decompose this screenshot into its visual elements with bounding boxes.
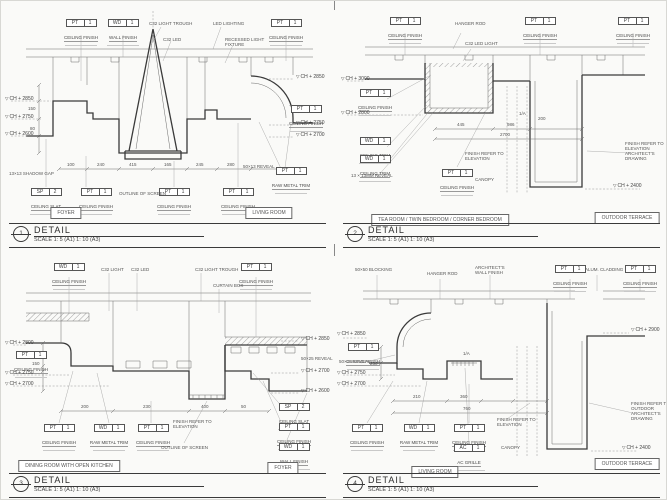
tag-code: PT bbox=[348, 343, 367, 351]
tag-number: 1 bbox=[379, 137, 391, 145]
level-symbol-icon: ▽ bbox=[341, 76, 344, 81]
tag-number: 1 bbox=[423, 424, 435, 432]
tag-spec-line bbox=[524, 42, 555, 44]
tag-number: 1 bbox=[85, 19, 97, 27]
tag-number: 1 bbox=[371, 424, 383, 432]
tag-number: 1 bbox=[461, 169, 473, 177]
title-block: 3 DETAIL SCALE 1: 5 (A1) 1: 10 (A3) bbox=[9, 473, 326, 498]
tag-label: CEILING FINISH bbox=[79, 204, 113, 211]
detail-number-bubble: 4 bbox=[347, 476, 363, 492]
tag-spec-line bbox=[93, 449, 124, 451]
callout-note: FINISH REFER TO ELEVATION bbox=[173, 419, 215, 429]
level-symbol-icon: ▽ bbox=[5, 340, 8, 345]
dim-label: 150 bbox=[32, 361, 40, 366]
tag-code: PT bbox=[618, 17, 637, 25]
room-label: DINING ROOM WITH OPEN KITCHEN bbox=[18, 460, 120, 472]
detail-title: DETAIL bbox=[34, 226, 204, 235]
tag-number: 1 bbox=[295, 167, 307, 175]
tag-number: 1 bbox=[63, 424, 75, 432]
level-marker: ▽CH + 2750 bbox=[5, 114, 34, 120]
tag-code: PT bbox=[223, 188, 242, 196]
dim-label: 760 bbox=[463, 406, 471, 411]
tag-number: 1 bbox=[242, 188, 254, 196]
dim-label: 100 bbox=[67, 162, 75, 167]
finish-tag: PT1 CEILING FINISH bbox=[341, 424, 393, 451]
callout-note: C32 LIGHT TROUGH bbox=[195, 267, 238, 272]
detail-title: DETAIL bbox=[368, 226, 538, 235]
tag-spec-line bbox=[43, 449, 74, 451]
dim-label: 80 bbox=[30, 126, 35, 131]
dim-label: 240 bbox=[97, 162, 105, 167]
level-marker: ▽CH + 2850 bbox=[337, 331, 366, 337]
finish-tag: WD1 WALL FINISH bbox=[97, 19, 149, 46]
level-marker: ▽CH + 2750 bbox=[337, 370, 366, 376]
tag-number: 1 bbox=[178, 188, 190, 196]
tag-label: RAW METAL TRIM bbox=[272, 183, 310, 190]
callout-note: OUTLINE OF SCREEN bbox=[119, 191, 166, 196]
dim-label: 200 bbox=[538, 116, 546, 121]
tag-code: PT bbox=[271, 19, 290, 27]
finish-tag: WD1 RAW METAL TRIM bbox=[393, 424, 445, 451]
detail-title: DETAIL bbox=[34, 476, 204, 485]
tag-code: PT bbox=[279, 423, 298, 431]
tag-code: PT bbox=[454, 424, 473, 432]
tag-number: 1 bbox=[260, 263, 272, 271]
dim-label: 360 bbox=[460, 394, 468, 399]
dim-label: 150 bbox=[28, 106, 36, 111]
tag-label: CEILING FINISH bbox=[269, 35, 303, 42]
level-marker: ▽CH + 2400 bbox=[613, 183, 642, 189]
callout-note: CANOPY bbox=[475, 177, 494, 182]
dim-label: 400 bbox=[201, 404, 209, 409]
detail-panel-3: WD1 CEILING FINISH PT1 CEILING FINISH PT… bbox=[1, 251, 334, 500]
dim-label: 245 bbox=[196, 162, 204, 167]
tag-code: WD bbox=[404, 424, 423, 432]
level-symbol-icon: ▽ bbox=[631, 327, 634, 332]
room-label: LIVING ROOM bbox=[245, 207, 292, 219]
tag-code: PT bbox=[16, 351, 35, 359]
tag-number: 1 bbox=[35, 351, 47, 359]
drawing-sheet: PT1 CEILING FINISH WD1 WALL FINISH PT1 C… bbox=[0, 0, 667, 500]
level-marker: ▽CH + 2850 bbox=[5, 96, 34, 102]
level-symbol-icon: ▽ bbox=[5, 370, 8, 375]
level-marker: ▽CH + 2700 bbox=[296, 132, 325, 138]
callout-note: OUTLINE OF SCREEN bbox=[161, 445, 208, 450]
tag-label: CEILING FINISH bbox=[64, 35, 98, 42]
tag-number: 2 bbox=[298, 403, 310, 411]
callout-note: CANOPY bbox=[501, 445, 520, 450]
tag-number: 1 bbox=[409, 17, 421, 25]
tag-code: PT bbox=[360, 89, 379, 97]
tag-number: 1 bbox=[73, 263, 85, 271]
callout-note: 50×13 REVEAL bbox=[243, 164, 275, 169]
dim-label: 200 bbox=[81, 404, 89, 409]
level-symbol-icon: ▽ bbox=[301, 388, 304, 393]
tag-label: CEILING FINISH bbox=[523, 33, 557, 40]
tag-code: AC bbox=[454, 444, 473, 452]
dim-label: 986 bbox=[507, 122, 515, 127]
tag-number: 1 bbox=[310, 105, 322, 113]
dim-label: 210 bbox=[413, 394, 421, 399]
tag-code: SP bbox=[279, 403, 298, 411]
level-symbol-icon: ▽ bbox=[5, 131, 8, 136]
callout-note: 50×50 BLOCKING bbox=[355, 267, 392, 272]
tag-number: 1 bbox=[574, 265, 586, 273]
callout-note: FINISH REFER TO OUTDOOR ARCHITECT'S DRAW… bbox=[631, 401, 667, 421]
tag-code: PT bbox=[291, 105, 310, 113]
finish-tag: PT1 CEILING FINISH bbox=[607, 17, 659, 44]
tag-label: CEILING FINISH bbox=[616, 33, 650, 40]
tag-code: WD bbox=[360, 155, 379, 163]
tag-number: 1 bbox=[379, 155, 391, 163]
level-symbol-icon: ▽ bbox=[5, 96, 8, 101]
tag-spec-line bbox=[554, 290, 585, 292]
finish-tag: PT1 CEILING FINISH bbox=[260, 19, 312, 46]
callout-note: C32 LED LIGHT bbox=[465, 41, 498, 46]
level-marker: ▽CH + 2700 bbox=[337, 381, 366, 387]
tag-number: 1 bbox=[127, 19, 139, 27]
tag-code: PT bbox=[555, 265, 574, 273]
detail-panel-1: PT1 CEILING FINISH WD1 WALL FINISH PT1 C… bbox=[1, 1, 334, 251]
tag-spec-line bbox=[53, 288, 84, 290]
tag-spec-line bbox=[270, 44, 301, 46]
detail-scale: SCALE 1: 5 (A1) 1: 10 (A3) bbox=[368, 236, 538, 244]
level-symbol-icon: ▽ bbox=[296, 120, 299, 125]
level-symbol-icon: ▽ bbox=[337, 331, 340, 336]
tag-code: PT bbox=[44, 424, 63, 432]
tag-spec-line bbox=[359, 180, 390, 182]
callout-note: 1/A bbox=[519, 111, 526, 116]
tag-spec-line bbox=[441, 194, 472, 196]
finish-tag: PT1 CEILING FINISH bbox=[379, 17, 431, 44]
level-marker: ▽CH + 2750 bbox=[296, 120, 325, 126]
tag-label: WALL FINISH bbox=[109, 35, 137, 42]
tag-code: PT bbox=[81, 188, 100, 196]
tag-code: PT bbox=[525, 17, 544, 25]
tag-code: PT bbox=[241, 263, 260, 271]
tag-label: CEILING FINISH bbox=[157, 204, 191, 211]
detail-scale: SCALE 1: 5 (A1) 1: 10 (A3) bbox=[34, 486, 204, 494]
level-symbol-icon: ▽ bbox=[613, 183, 616, 188]
tag-spec-line bbox=[65, 44, 96, 46]
tag-number: 1 bbox=[544, 17, 556, 25]
finish-tag: WD1 CEILING FINISH bbox=[43, 263, 95, 290]
tag-number: 1 bbox=[113, 424, 125, 432]
tag-number: 1 bbox=[644, 265, 656, 273]
level-symbol-icon: ▽ bbox=[296, 132, 299, 137]
callout-note: FINISH REFER TO ELEVATION ARCHITECT'S DR… bbox=[625, 141, 667, 161]
detail-scale: SCALE 1: 5 (A1) 1: 10 (A3) bbox=[368, 486, 538, 494]
tag-code: PT bbox=[442, 169, 461, 177]
dim-label: 230 bbox=[143, 404, 151, 409]
tag-label: CEILING FINISH bbox=[623, 281, 657, 288]
callout-note: 13×13 SHADOW GAP bbox=[9, 171, 54, 176]
tag-code: SP bbox=[31, 188, 50, 196]
level-marker: ▽CH + 2850 bbox=[301, 336, 330, 342]
tag-code: PT bbox=[625, 265, 644, 273]
dim-label: 415 bbox=[129, 162, 137, 167]
dim-label: 445 bbox=[457, 122, 465, 127]
tag-label: CEILING FINISH bbox=[42, 440, 76, 447]
tag-number: 1 bbox=[473, 424, 485, 432]
tag-label: RAW METAL TRIM bbox=[90, 440, 128, 447]
callout-note: CURTAIN BOX bbox=[213, 283, 243, 288]
tag-number: 1 bbox=[298, 443, 310, 451]
tag-label: AC GRILLE bbox=[457, 460, 481, 467]
dim-label: 250 bbox=[370, 361, 378, 366]
detail-title: DETAIL bbox=[368, 476, 538, 485]
tag-code: WD bbox=[279, 443, 298, 451]
title-block: 2 DETAIL SCALE 1: 5 (A1) 1: 10 (A3) bbox=[343, 223, 660, 248]
tag-number: 2 bbox=[50, 188, 62, 196]
tag-code: PT bbox=[138, 424, 157, 432]
callout-note: FINISH REFER TO ELEVATION bbox=[465, 151, 507, 161]
tag-code: WD bbox=[108, 19, 127, 27]
tag-label: CEILING FINISH bbox=[440, 185, 474, 192]
tag-code: WD bbox=[94, 424, 113, 432]
room-label: OUTDOOR TERRACE bbox=[595, 458, 660, 470]
tag-number: 1 bbox=[473, 444, 485, 452]
finish-tag: PT1 CEILING FINISH bbox=[280, 105, 332, 132]
tag-spec-line bbox=[15, 376, 46, 378]
callout-note: ARCHITECT'S WALL FINISH bbox=[475, 265, 517, 275]
callout-note: 1/A bbox=[463, 351, 470, 356]
callout-note: 13 × 13MM REVEAL bbox=[351, 173, 393, 178]
tag-code: PT bbox=[276, 167, 295, 175]
tag-spec-line bbox=[617, 42, 648, 44]
detail-panel-4: PT1 CEILING FINISH PT1 CEILING FINISH PT… bbox=[335, 251, 667, 500]
callout-note: HANGER ROD bbox=[427, 271, 458, 276]
callout-note: C32 LED bbox=[163, 37, 181, 42]
callout-note: FINISH REFER TO ELEVATION bbox=[497, 417, 539, 427]
tag-code: PT bbox=[352, 424, 371, 432]
detail-scale: SCALE 1: 5 (A1) 1: 10 (A3) bbox=[34, 236, 204, 244]
level-marker: ▽CH + 2600 bbox=[5, 131, 34, 137]
level-symbol-icon: ▽ bbox=[5, 381, 8, 386]
callout-note: RECESSED LIGHT FIXTURE bbox=[225, 37, 267, 47]
finish-tag: PT1 CEILING FINISH bbox=[337, 343, 389, 370]
tag-spec-line bbox=[158, 213, 189, 215]
detail-number-bubble: 3 bbox=[13, 476, 29, 492]
tag-label: CEILING FINISH bbox=[388, 33, 422, 40]
tag-spec-line bbox=[80, 213, 111, 215]
tag-code: WD bbox=[360, 137, 379, 145]
tag-number: 1 bbox=[100, 188, 112, 196]
tag-code: WD bbox=[54, 263, 73, 271]
tag-code: PT bbox=[390, 17, 409, 25]
callout-note: HANGER ROD bbox=[455, 21, 486, 26]
dim-label: 280 bbox=[227, 162, 235, 167]
tag-label: RAW METAL TRIM bbox=[400, 440, 438, 447]
tag-number: 1 bbox=[379, 89, 391, 97]
tag-label: CEILING FINISH bbox=[52, 279, 86, 286]
finish-tag: PT1 CEILING FINISH bbox=[33, 424, 85, 451]
callout-note: C32 LIGHT bbox=[101, 267, 124, 272]
level-marker: ▽CH + 2800 bbox=[5, 340, 34, 346]
level-marker: ▽CH + 3000 bbox=[341, 76, 370, 82]
callout-note: 50×25 REVEAL bbox=[301, 356, 333, 361]
detail-number-bubble: 2 bbox=[347, 226, 363, 242]
tag-spec-line bbox=[624, 290, 655, 292]
level-symbol-icon: ▽ bbox=[337, 370, 340, 375]
level-marker: ▽CH + 2800 bbox=[341, 110, 370, 116]
title-block: 4 DETAIL SCALE 1: 5 (A1) 1: 10 (A3) bbox=[343, 473, 660, 498]
level-symbol-icon: ▽ bbox=[296, 74, 299, 79]
tag-number: 1 bbox=[290, 19, 302, 27]
finish-tag: PT1 RAW METAL TRIM bbox=[265, 167, 317, 194]
dim-label: 50 bbox=[241, 404, 246, 409]
level-marker: ▽CH + 2700 bbox=[5, 381, 34, 387]
tag-spec-line bbox=[351, 449, 382, 451]
tag-spec-line bbox=[240, 288, 271, 290]
level-marker: ▽CH + 2600 bbox=[301, 388, 330, 394]
dim-label: 2700 bbox=[500, 132, 510, 137]
level-marker: ▽CH + 2750 bbox=[5, 370, 34, 376]
callout-note: ALUM. CLADDING bbox=[585, 267, 623, 272]
callout-note: C32 LED bbox=[131, 267, 149, 272]
level-symbol-icon: ▽ bbox=[341, 110, 344, 115]
tag-label: CEILING FINISH bbox=[553, 281, 587, 288]
tag-number: 1 bbox=[298, 423, 310, 431]
dim-label: 165 bbox=[164, 162, 172, 167]
tag-number: 1 bbox=[637, 17, 649, 25]
tag-code: PT bbox=[66, 19, 85, 27]
tag-spec-line bbox=[275, 192, 306, 194]
level-symbol-icon: ▽ bbox=[337, 381, 340, 386]
room-label: FOYER bbox=[50, 207, 81, 219]
title-block: 1 DETAIL SCALE 1: 5 (A1) 1: 10 (A3) bbox=[9, 223, 326, 248]
callout-note: LED LIGHTING bbox=[213, 21, 244, 26]
callout-note: C32 LIGHT TROUGH bbox=[149, 21, 192, 26]
level-marker: ▽CH + 2400 bbox=[622, 445, 651, 451]
level-symbol-icon: ▽ bbox=[5, 114, 8, 119]
level-marker: ▽CH + 2850 bbox=[296, 74, 325, 80]
level-marker: ▽CH + 2700 bbox=[301, 368, 330, 374]
tag-label: CEILING FINISH bbox=[350, 440, 384, 447]
tag-spec-line bbox=[107, 44, 138, 46]
level-marker: ▽CH + 2900 bbox=[631, 327, 660, 333]
detail-panel-2: PT1 CEILING FINISH PT1 CEILING FINISH PT… bbox=[335, 1, 667, 251]
tag-spec-line bbox=[389, 42, 420, 44]
level-symbol-icon: ▽ bbox=[301, 368, 304, 373]
level-symbol-icon: ▽ bbox=[622, 445, 625, 450]
tag-spec-line bbox=[403, 449, 434, 451]
level-symbol-icon: ▽ bbox=[301, 336, 304, 341]
tag-number: 1 bbox=[367, 343, 379, 351]
tag-number: 1 bbox=[157, 424, 169, 432]
tag-label: CEILING FINISH bbox=[239, 279, 273, 286]
finish-tag: PT1 CEILING FINISH bbox=[514, 17, 566, 44]
callout-note: 50×25 REVEAL bbox=[339, 359, 371, 364]
detail-number-bubble: 1 bbox=[13, 226, 29, 242]
finish-tag: PT1 CEILING FINISH bbox=[431, 169, 483, 196]
